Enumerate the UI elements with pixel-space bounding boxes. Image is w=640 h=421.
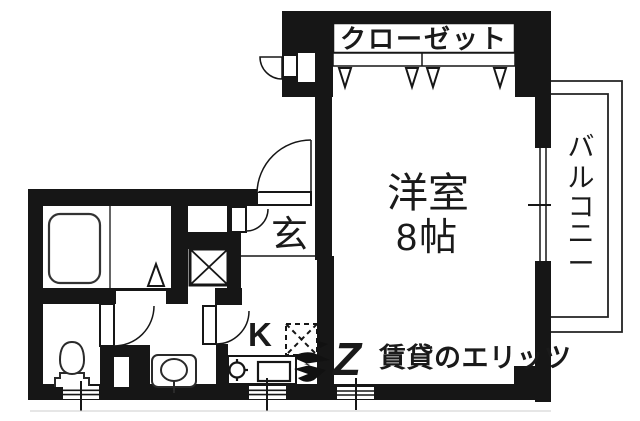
svg-text:8帖: 8帖 bbox=[396, 217, 459, 259]
svg-text:玄: 玄 bbox=[271, 214, 308, 255]
svg-text:Z: Z bbox=[331, 333, 363, 385]
svg-text:コ: コ bbox=[568, 192, 595, 222]
svg-text:賃貸のエリッツ: 賃貸のエリッツ bbox=[378, 342, 572, 373]
svg-text:洋室: 洋室 bbox=[387, 170, 469, 216]
svg-text:バ: バ bbox=[568, 132, 595, 162]
svg-text:ル: ル bbox=[568, 163, 595, 193]
svg-text:K: K bbox=[248, 316, 272, 353]
svg-text:ー: ー bbox=[568, 249, 595, 279]
svg-text:クローゼット: クローゼット bbox=[340, 24, 508, 54]
svg-text:ニ: ニ bbox=[568, 219, 595, 249]
